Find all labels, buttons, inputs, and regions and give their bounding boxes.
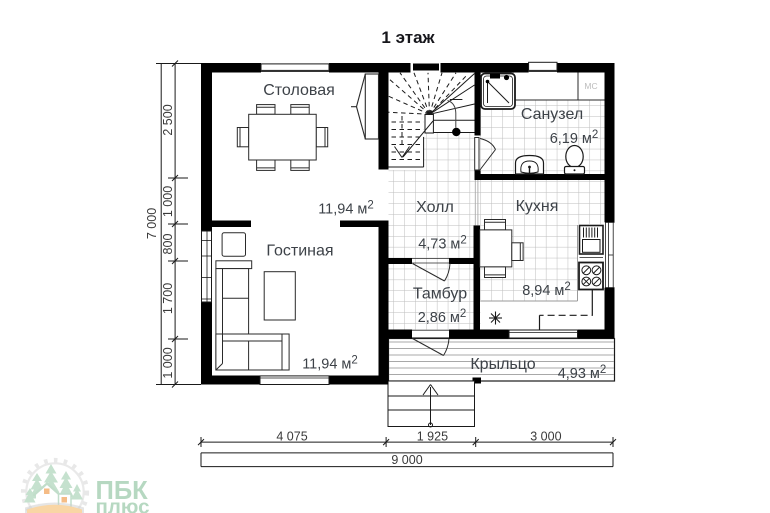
svg-text:11,94 м2: 11,94 м2	[318, 200, 374, 218]
svg-text:4 075: 4 075	[276, 430, 307, 444]
svg-text:1 700: 1 700	[161, 283, 175, 314]
svg-text:Гостиная: Гостиная	[266, 243, 333, 260]
svg-text:Столовая: Столовая	[263, 82, 335, 99]
svg-text:3 000: 3 000	[530, 430, 561, 444]
svg-text:6,19 м2: 6,19 м2	[550, 129, 599, 147]
svg-text:1 000: 1 000	[161, 347, 175, 378]
svg-text:7 000: 7 000	[145, 208, 159, 239]
svg-text:Тамбур: Тамбур	[413, 286, 467, 303]
svg-text:Холл: Холл	[416, 199, 454, 216]
svg-text:1 этаж: 1 этаж	[381, 28, 435, 47]
svg-text:9 000: 9 000	[391, 453, 422, 467]
svg-text:2 500: 2 500	[161, 104, 175, 135]
svg-text:8,94 м2: 8,94 м2	[522, 281, 571, 299]
svg-text:Крыльцо: Крыльцо	[470, 356, 535, 373]
svg-text:Санузел: Санузел	[521, 106, 583, 123]
svg-text:800: 800	[161, 234, 175, 255]
svg-text:МС: МС	[584, 81, 597, 91]
svg-text:1 000: 1 000	[161, 186, 175, 217]
svg-text:1 925: 1 925	[417, 430, 448, 444]
svg-text:4,73 м2: 4,73 м2	[418, 235, 467, 253]
svg-text:11,94 м2: 11,94 м2	[302, 355, 358, 373]
svg-text:Кухня: Кухня	[516, 198, 559, 215]
svg-text:4,93 м2: 4,93 м2	[558, 364, 607, 382]
svg-text:плюс: плюс	[96, 496, 150, 513]
svg-text:2,86 м2: 2,86 м2	[418, 308, 467, 326]
